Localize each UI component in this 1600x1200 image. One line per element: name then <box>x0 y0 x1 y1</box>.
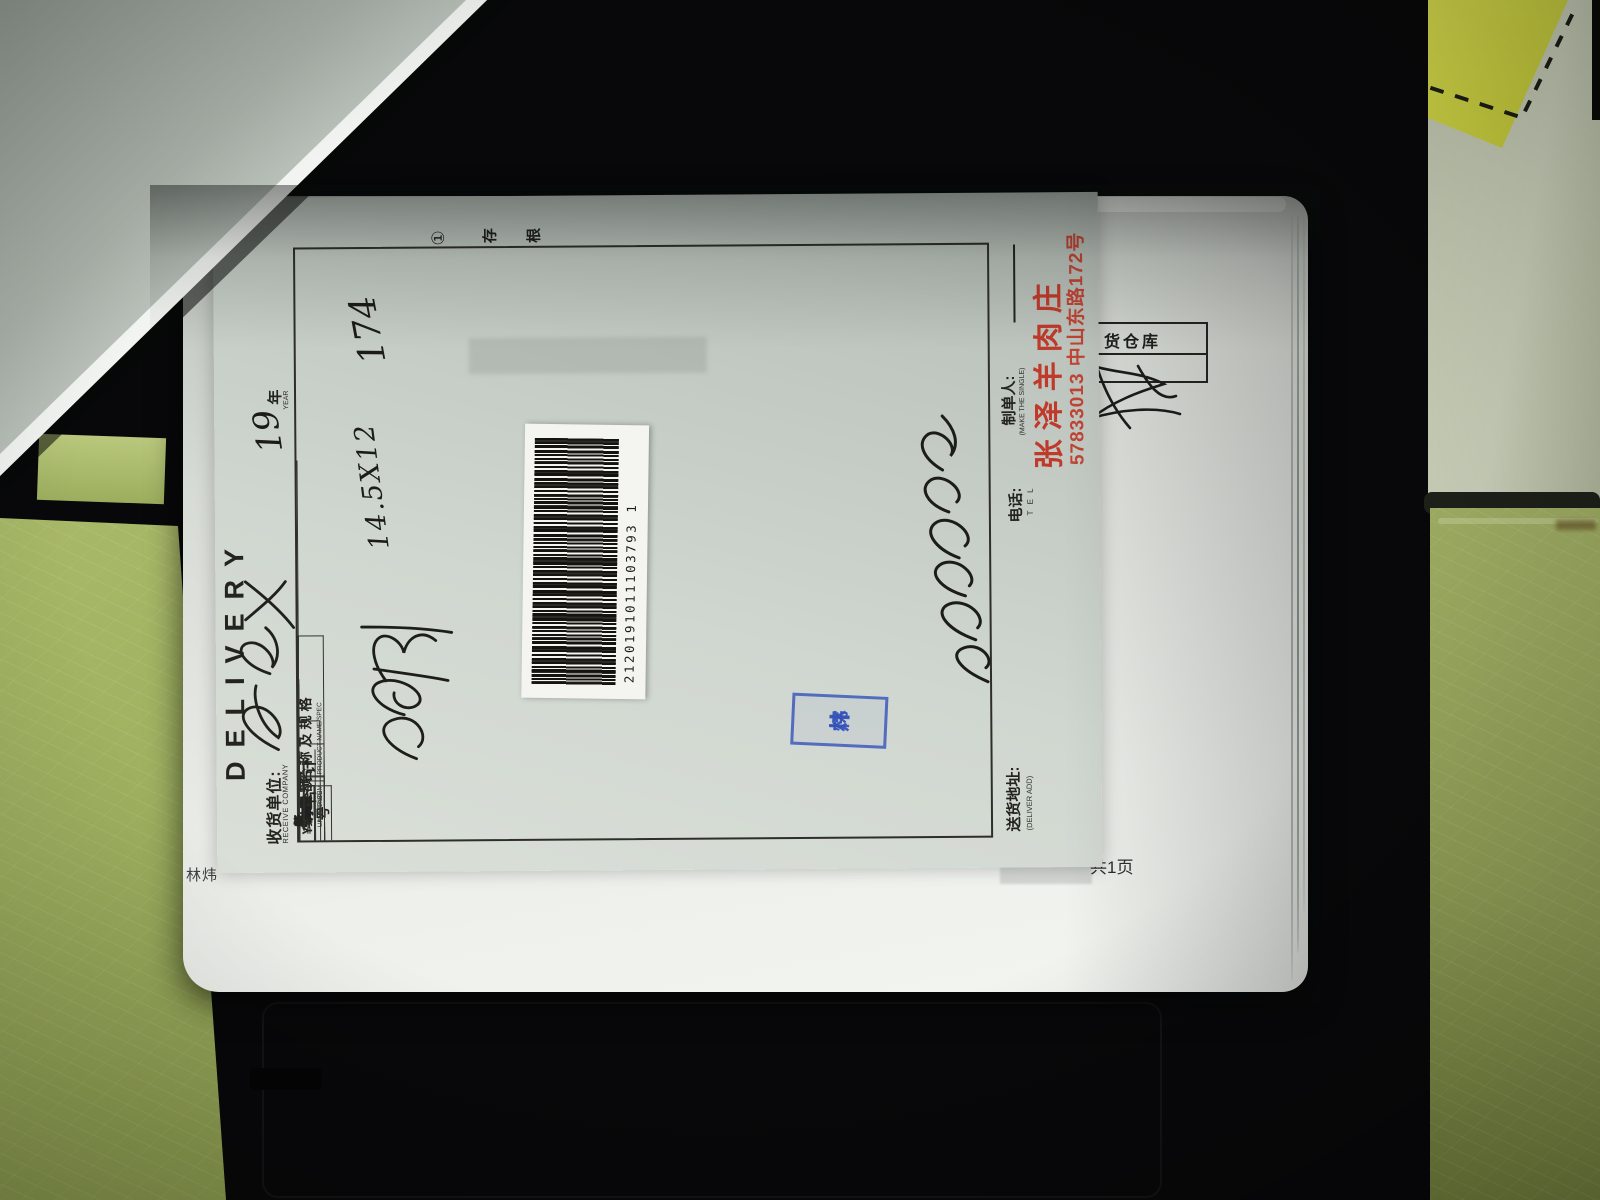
green-table-surface-right <box>1430 508 1600 1200</box>
laptop-lid-seam <box>262 1002 1162 1198</box>
stub-label: 存根 <box>469 225 557 244</box>
year-label: 年 <box>264 390 285 405</box>
page-edge-line <box>1291 214 1293 982</box>
barcode-bars <box>531 438 618 685</box>
stain-mark <box>1556 520 1596 530</box>
seller-phone-address-red: 57833013 中山东路172号 <box>1061 231 1090 465</box>
delivery-sheet-wrapper: DELIVERY 收货单位: RECEIVE COMPANY 19 年 YEAR… <box>213 192 1103 873</box>
tel-label: 电话: <box>1005 487 1026 522</box>
year-label-en: YEAR <box>283 390 290 409</box>
handwritten-product-name <box>343 596 459 777</box>
total-row: 合计 拾 万 仟 佰 拾 元 角 分 ¥ <box>295 249 339 840</box>
deliver-address-label-en: (DELIVER ADD) <box>1025 776 1034 831</box>
slab-edge-shadow <box>1592 0 1600 120</box>
maker-label: 制单人: <box>998 375 1019 425</box>
page-edge-line <box>1297 214 1299 954</box>
maker-blank-line <box>1013 244 1016 322</box>
barcode-number: 2120191011103793 1 <box>622 503 640 684</box>
carbon-ghost-band <box>469 337 707 375</box>
amount-blank-line <box>303 760 305 830</box>
name-stamp: 林 炜 <box>790 693 888 749</box>
delivery-note-document: DELIVERY 收货单位: RECEIVE COMPANY 19 年 YEAR… <box>213 192 1103 873</box>
surface-scratches <box>1430 508 1600 1200</box>
handwritten-amount-in-words <box>902 397 1024 698</box>
laptop-notch <box>250 1068 322 1090</box>
table-edge-strip-left <box>37 434 166 504</box>
total-currency: ¥ <box>299 749 317 840</box>
handwritten-year: 19 <box>245 407 291 456</box>
photo-of-delivery-note: 林炜 共1页 货仓库 DELIVERY 收货单位: RECEIVE COMPAN… <box>0 0 1600 1200</box>
deliver-address-label: 送货地址: <box>1003 766 1024 831</box>
barcode-sticker: 2120191011103793 1 <box>521 424 649 700</box>
stub-circled-number: ① <box>429 230 449 245</box>
backing-page-printed-name: 林炜 <box>186 864 218 885</box>
page-edge-line <box>1303 214 1305 914</box>
tel-label-en: T E L <box>1026 486 1035 515</box>
stamp-char: 炜 <box>824 710 855 732</box>
